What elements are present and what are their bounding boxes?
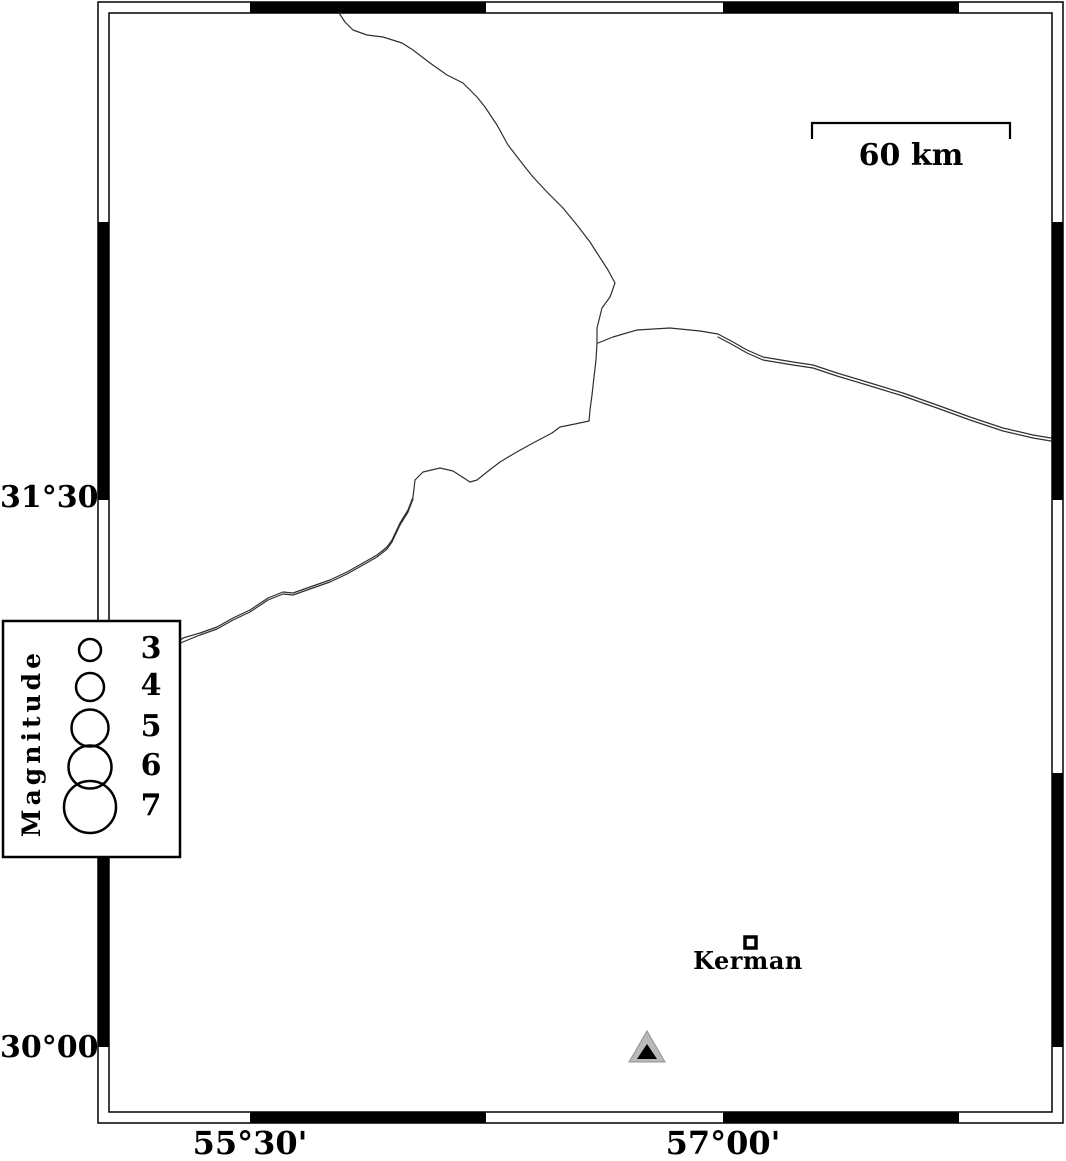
frame-tick-top-2 <box>723 2 959 13</box>
frame-tick-bottom-2 <box>723 1112 959 1123</box>
lon-label-57-00: 57°00' <box>643 1124 803 1161</box>
scale-bar-label: 60 km <box>812 138 1010 173</box>
river-line-southwest <box>178 421 589 642</box>
city-label-kerman: Kerman <box>668 946 828 975</box>
lat-label-30-00: 30°00' <box>0 1030 88 1065</box>
river-line-southwest-2 <box>178 499 413 644</box>
frame-tick-top-1 <box>250 2 486 13</box>
legend-label-mag6: 6 <box>135 748 167 783</box>
lat-label-31-30: 31°30' <box>0 480 88 515</box>
scale-bar <box>812 123 1010 139</box>
river-line-east-2 <box>718 337 1051 441</box>
legend-label-mag7: 7 <box>135 788 167 823</box>
legend-label-mag5: 5 <box>135 709 167 744</box>
frame-inner-line <box>109 13 1052 1112</box>
legend-label-mag3: 3 <box>135 631 167 666</box>
station-marker <box>629 1031 665 1062</box>
frame-tick-bottom-1 <box>250 1112 486 1123</box>
legend-label-mag4: 4 <box>135 668 167 703</box>
legend-title: Magnitude <box>17 633 49 853</box>
river-line-north <box>339 13 615 421</box>
frame-tick-left-1 <box>98 222 109 500</box>
line-features <box>178 13 1051 644</box>
frame-tick-right-2 <box>1052 773 1063 1047</box>
frame-tick-right-1 <box>1052 222 1063 500</box>
map-canvas <box>0 0 1066 1161</box>
lon-label-55-30: 55°30' <box>170 1124 330 1161</box>
map-figure: 31°30' 30°00' 55°30' 57°00' 60 km Kerman… <box>0 0 1066 1161</box>
river-line-east <box>598 328 1051 438</box>
